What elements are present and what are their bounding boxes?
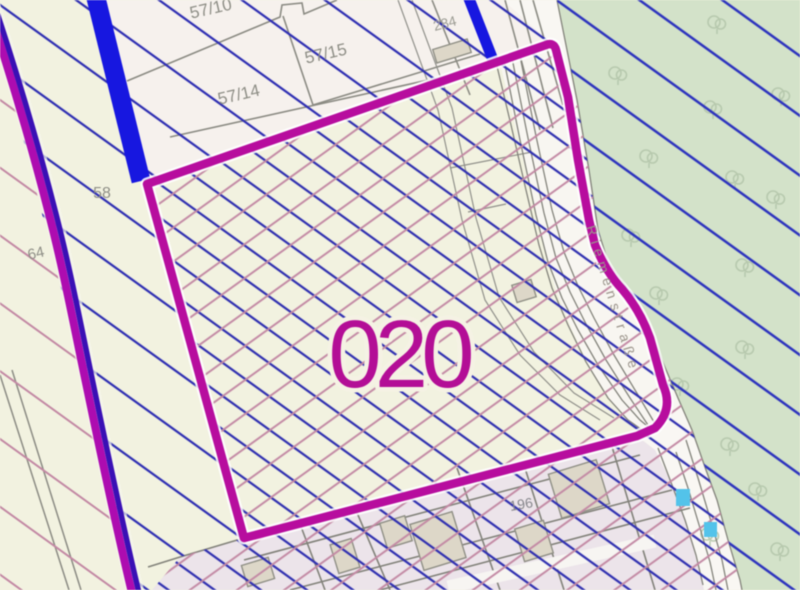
svg-text:020: 020 (328, 301, 471, 408)
svg-text:58: 58 (93, 185, 111, 202)
